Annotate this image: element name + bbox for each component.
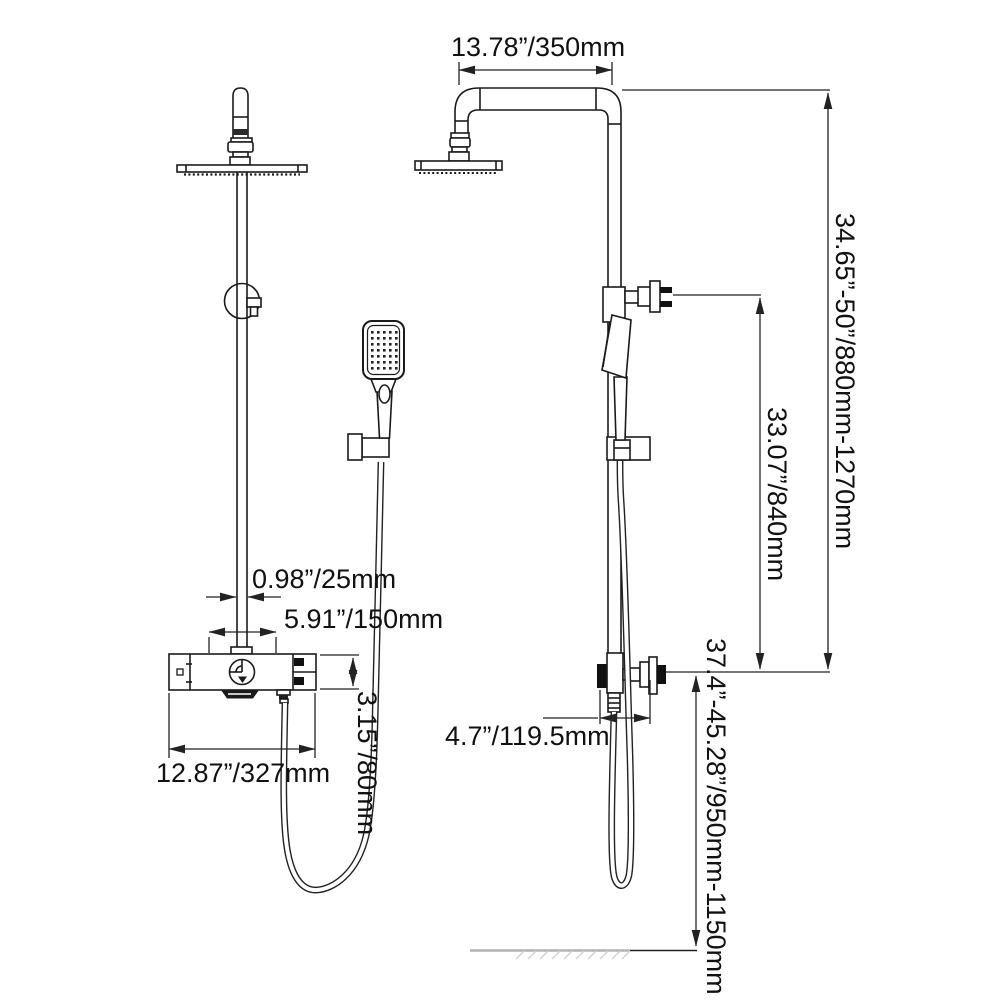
side-hand-shower — [602, 315, 631, 440]
dim-valve-depth — [543, 680, 650, 724]
front-riser-pipe — [237, 172, 247, 648]
side-hand-shower-holder — [607, 437, 650, 460]
diagram-canvas: 13.78”/350mm 34.65”-50”/880mm-1270mm 33.… — [0, 0, 1000, 1000]
dim-label-upper-section-height: 33.07”/840mm — [762, 407, 792, 581]
dim-valve-height — [320, 655, 359, 689]
front-hand-shower — [363, 321, 404, 438]
side-view — [415, 88, 672, 886]
dim-label-inlet-spacing: 5.91”/150mm — [284, 604, 443, 634]
dim-label-pipe-diameter: 0.98”/25mm — [252, 564, 396, 594]
dim-label-valve-body-height: 3.15”/80mm — [352, 691, 382, 835]
dim-valve-width — [169, 693, 315, 758]
front-valve-body — [169, 647, 316, 703]
side-shower-arm — [449, 88, 621, 161]
dim-label-valve-body-width: 12.87”/327mm — [156, 758, 330, 788]
side-rain-shower-head — [415, 161, 502, 173]
front-hose-connector — [277, 690, 290, 703]
dim-label-arm-reach: 13.78”/350mm — [451, 32, 625, 62]
dim-arm-reach — [459, 62, 612, 85]
dim-label-overall-height: 34.65”-50”/880mm-1270mm — [830, 213, 860, 549]
front-shower-arm — [228, 88, 253, 165]
dim-label-valve-depth: 4.7”/119.5mm — [445, 721, 610, 751]
front-slide-bracket — [225, 284, 262, 319]
dim-label-valve-floor-height: 37.4”-45.28”/950mm-1150mm — [701, 638, 731, 995]
front-rain-shower-head — [177, 165, 307, 175]
ground-line — [470, 951, 697, 960]
